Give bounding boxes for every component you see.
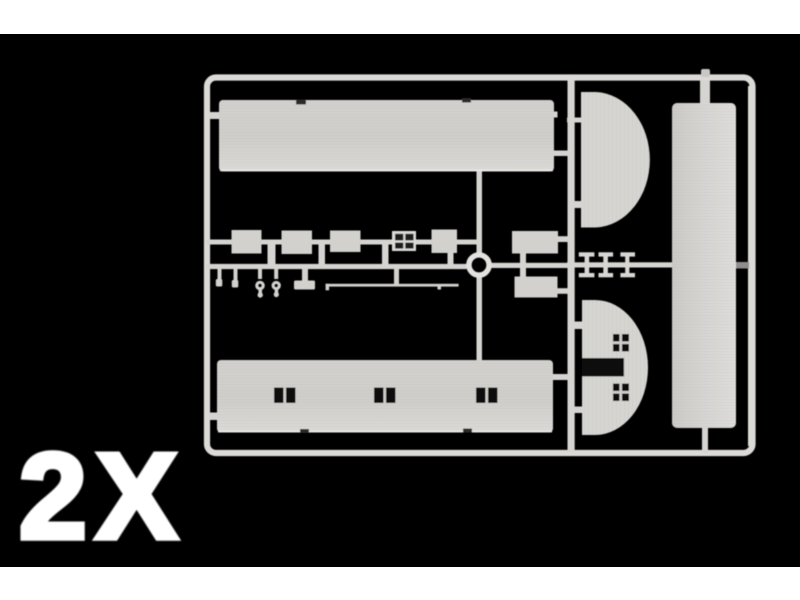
svg-text:2X: 2X [19, 428, 186, 564]
